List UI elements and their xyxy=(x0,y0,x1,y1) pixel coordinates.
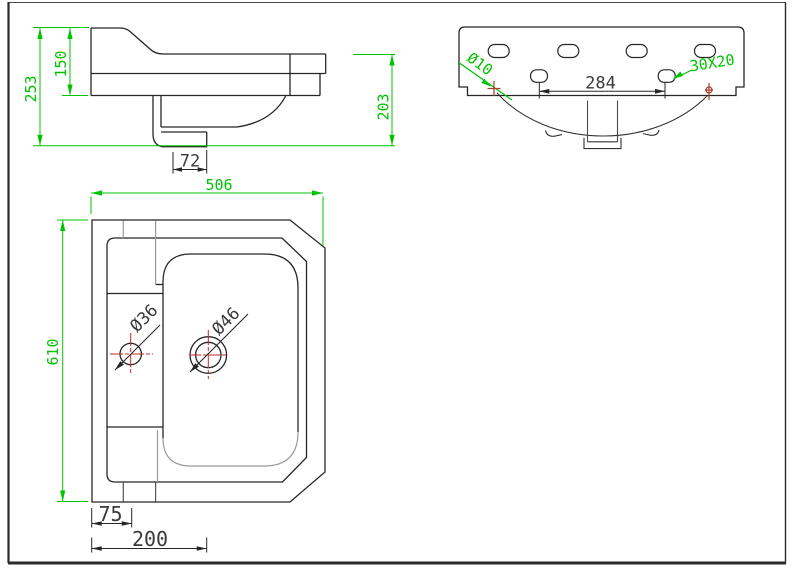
dim-72-label: 72 xyxy=(180,152,200,172)
arrow-284-left xyxy=(539,89,549,94)
arrow-506-right xyxy=(312,190,323,195)
dim-200-label: 200 xyxy=(132,527,168,551)
plan-bowl-bottom-gray xyxy=(163,432,298,466)
dim-506-label: 506 xyxy=(205,176,232,194)
plan-green-arrows xyxy=(60,190,323,501)
rear-view: 284 Ø10 30X20 xyxy=(458,27,744,149)
side-top-profile xyxy=(91,28,326,54)
rear-leader-arrows xyxy=(481,72,683,87)
mounting-slot-1 xyxy=(488,45,509,58)
arrow-253-bottom xyxy=(37,135,42,146)
side-view-outline xyxy=(91,28,326,147)
arrow-75-right xyxy=(122,521,132,526)
arrow-610-top xyxy=(60,220,65,231)
dim-203-label: 203 xyxy=(375,93,393,120)
plan-inner-rim xyxy=(107,238,307,482)
dim-drain-dia-label: Ø46 xyxy=(208,304,244,340)
dim-253-label: 253 xyxy=(22,75,40,102)
arrow-203-bottom xyxy=(389,135,394,146)
arrow-203-top xyxy=(389,55,394,66)
fixing-hole-left xyxy=(531,70,548,83)
dim-150-label: 150 xyxy=(52,50,70,77)
plan-bottom-dividers xyxy=(123,482,155,502)
rear-bowl xyxy=(497,93,708,149)
mounting-slot-2 xyxy=(558,45,579,58)
arrow-253-top xyxy=(37,28,42,39)
rear-drain-cup xyxy=(584,138,621,149)
fixing-hole-right xyxy=(658,70,675,83)
rear-bump-left xyxy=(546,131,563,137)
arrow-200-left xyxy=(92,546,102,551)
dim-75-label: 75 xyxy=(98,502,122,526)
cad-sheet: 253 150 203 72 xyxy=(0,0,809,584)
plan-bowl-edge xyxy=(163,254,298,438)
mounting-slot-3 xyxy=(626,45,647,58)
side-bowl-curve xyxy=(237,96,286,128)
rear-bowl-arc xyxy=(497,93,708,136)
drawing-frame xyxy=(8,2,786,563)
arrow-150-bottom xyxy=(67,85,72,96)
dim-284-label: 284 xyxy=(585,74,616,94)
plan-view: Ø36 Ø46 506 610 xyxy=(44,176,325,553)
side-view: 253 150 203 72 xyxy=(22,28,395,174)
arrow-150-top xyxy=(67,28,72,39)
arrow-200-right xyxy=(197,546,207,551)
plan-leader-arrows xyxy=(115,361,199,372)
dim-dia10-label: Ø10 xyxy=(464,49,496,79)
dim-610-label: 610 xyxy=(44,338,62,365)
arrow-506-left xyxy=(91,190,102,195)
arrow-284-right xyxy=(655,89,665,94)
arrow-610-bottom xyxy=(60,491,65,502)
side-view-dimensions xyxy=(33,28,395,146)
dim-faucet-dia-label: Ø36 xyxy=(126,301,162,337)
drawing-canvas: 253 150 203 72 xyxy=(0,0,809,584)
